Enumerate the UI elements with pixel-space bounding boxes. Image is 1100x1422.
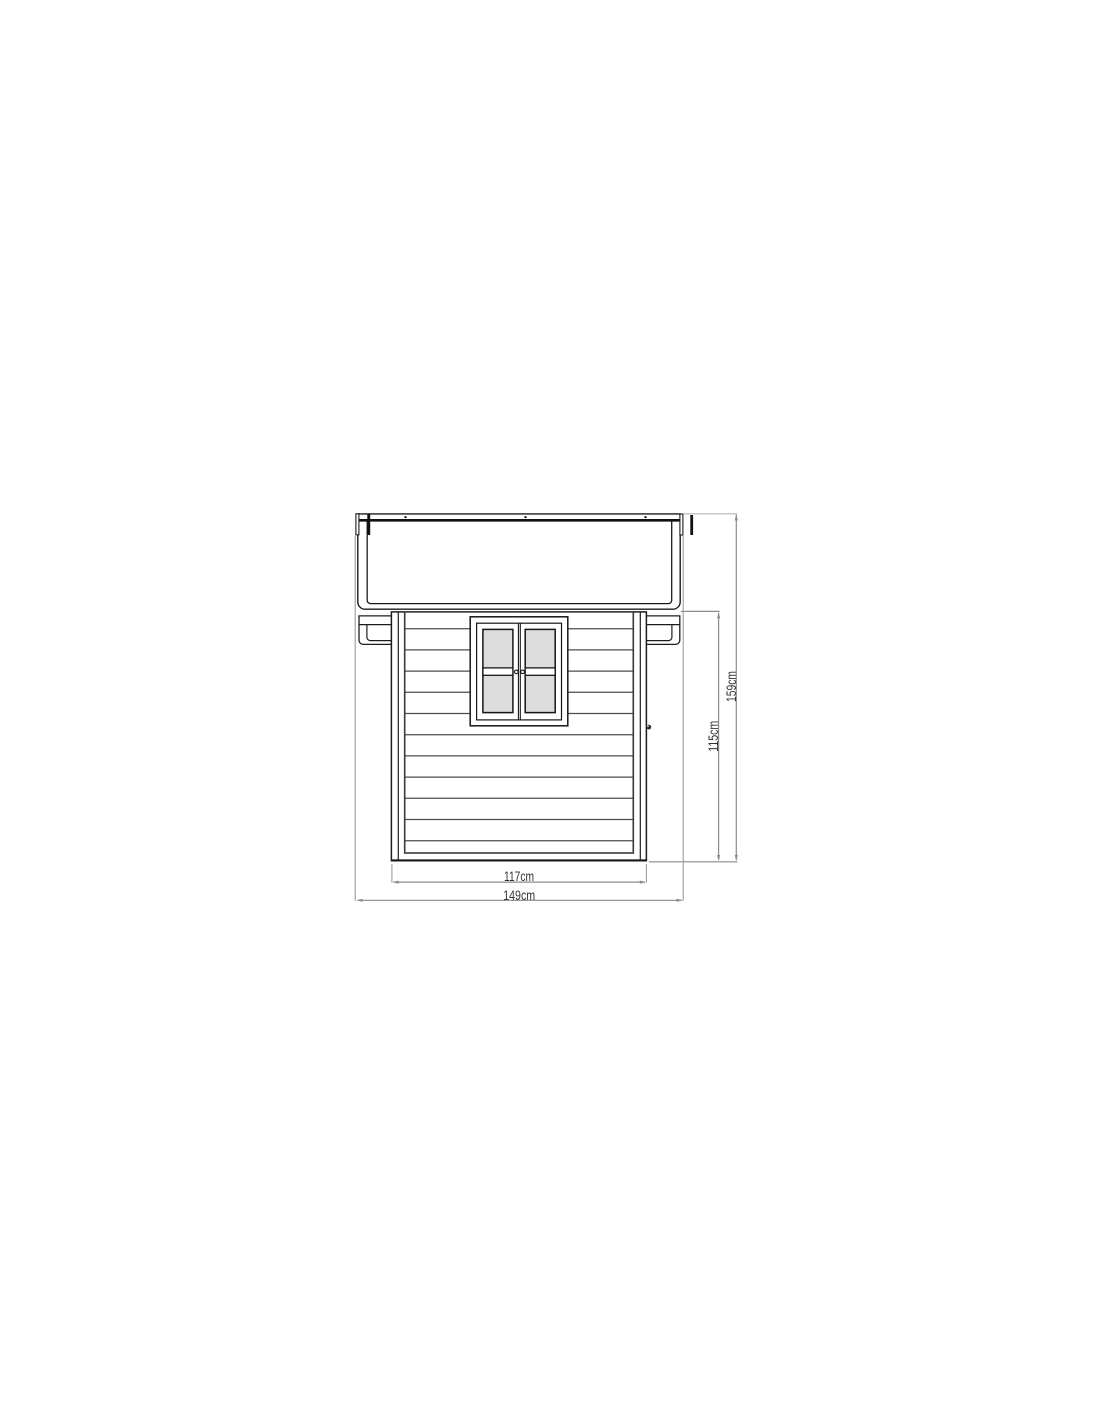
svg-text:149cm: 149cm: [503, 888, 535, 903]
svg-text:117cm: 117cm: [504, 869, 534, 884]
svg-text:115cm: 115cm: [706, 721, 721, 752]
svg-text:159cm: 159cm: [724, 671, 739, 702]
